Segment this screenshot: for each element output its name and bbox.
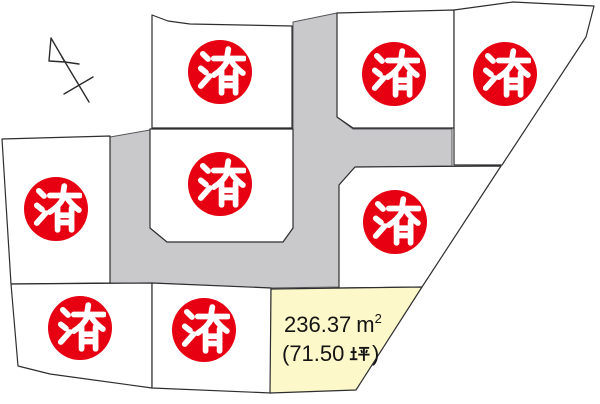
- available-area-tsubo-open: (71.50: [282, 341, 344, 366]
- sold-stamp: [188, 152, 252, 216]
- sold-stamp: [363, 190, 427, 254]
- land-lot-map: 236.37m2 (71.50 ): [0, 0, 600, 404]
- sold-stamp: [473, 42, 537, 106]
- sold-stamp: [48, 296, 112, 360]
- available-area-sqm: 236.37m2: [284, 311, 382, 337]
- sold-stamp: [188, 40, 252, 104]
- sold-stamp: [362, 42, 426, 106]
- sold-stamp: [172, 298, 236, 362]
- sold-stamp: [24, 177, 88, 241]
- available-area-tsubo-close: ): [372, 341, 379, 366]
